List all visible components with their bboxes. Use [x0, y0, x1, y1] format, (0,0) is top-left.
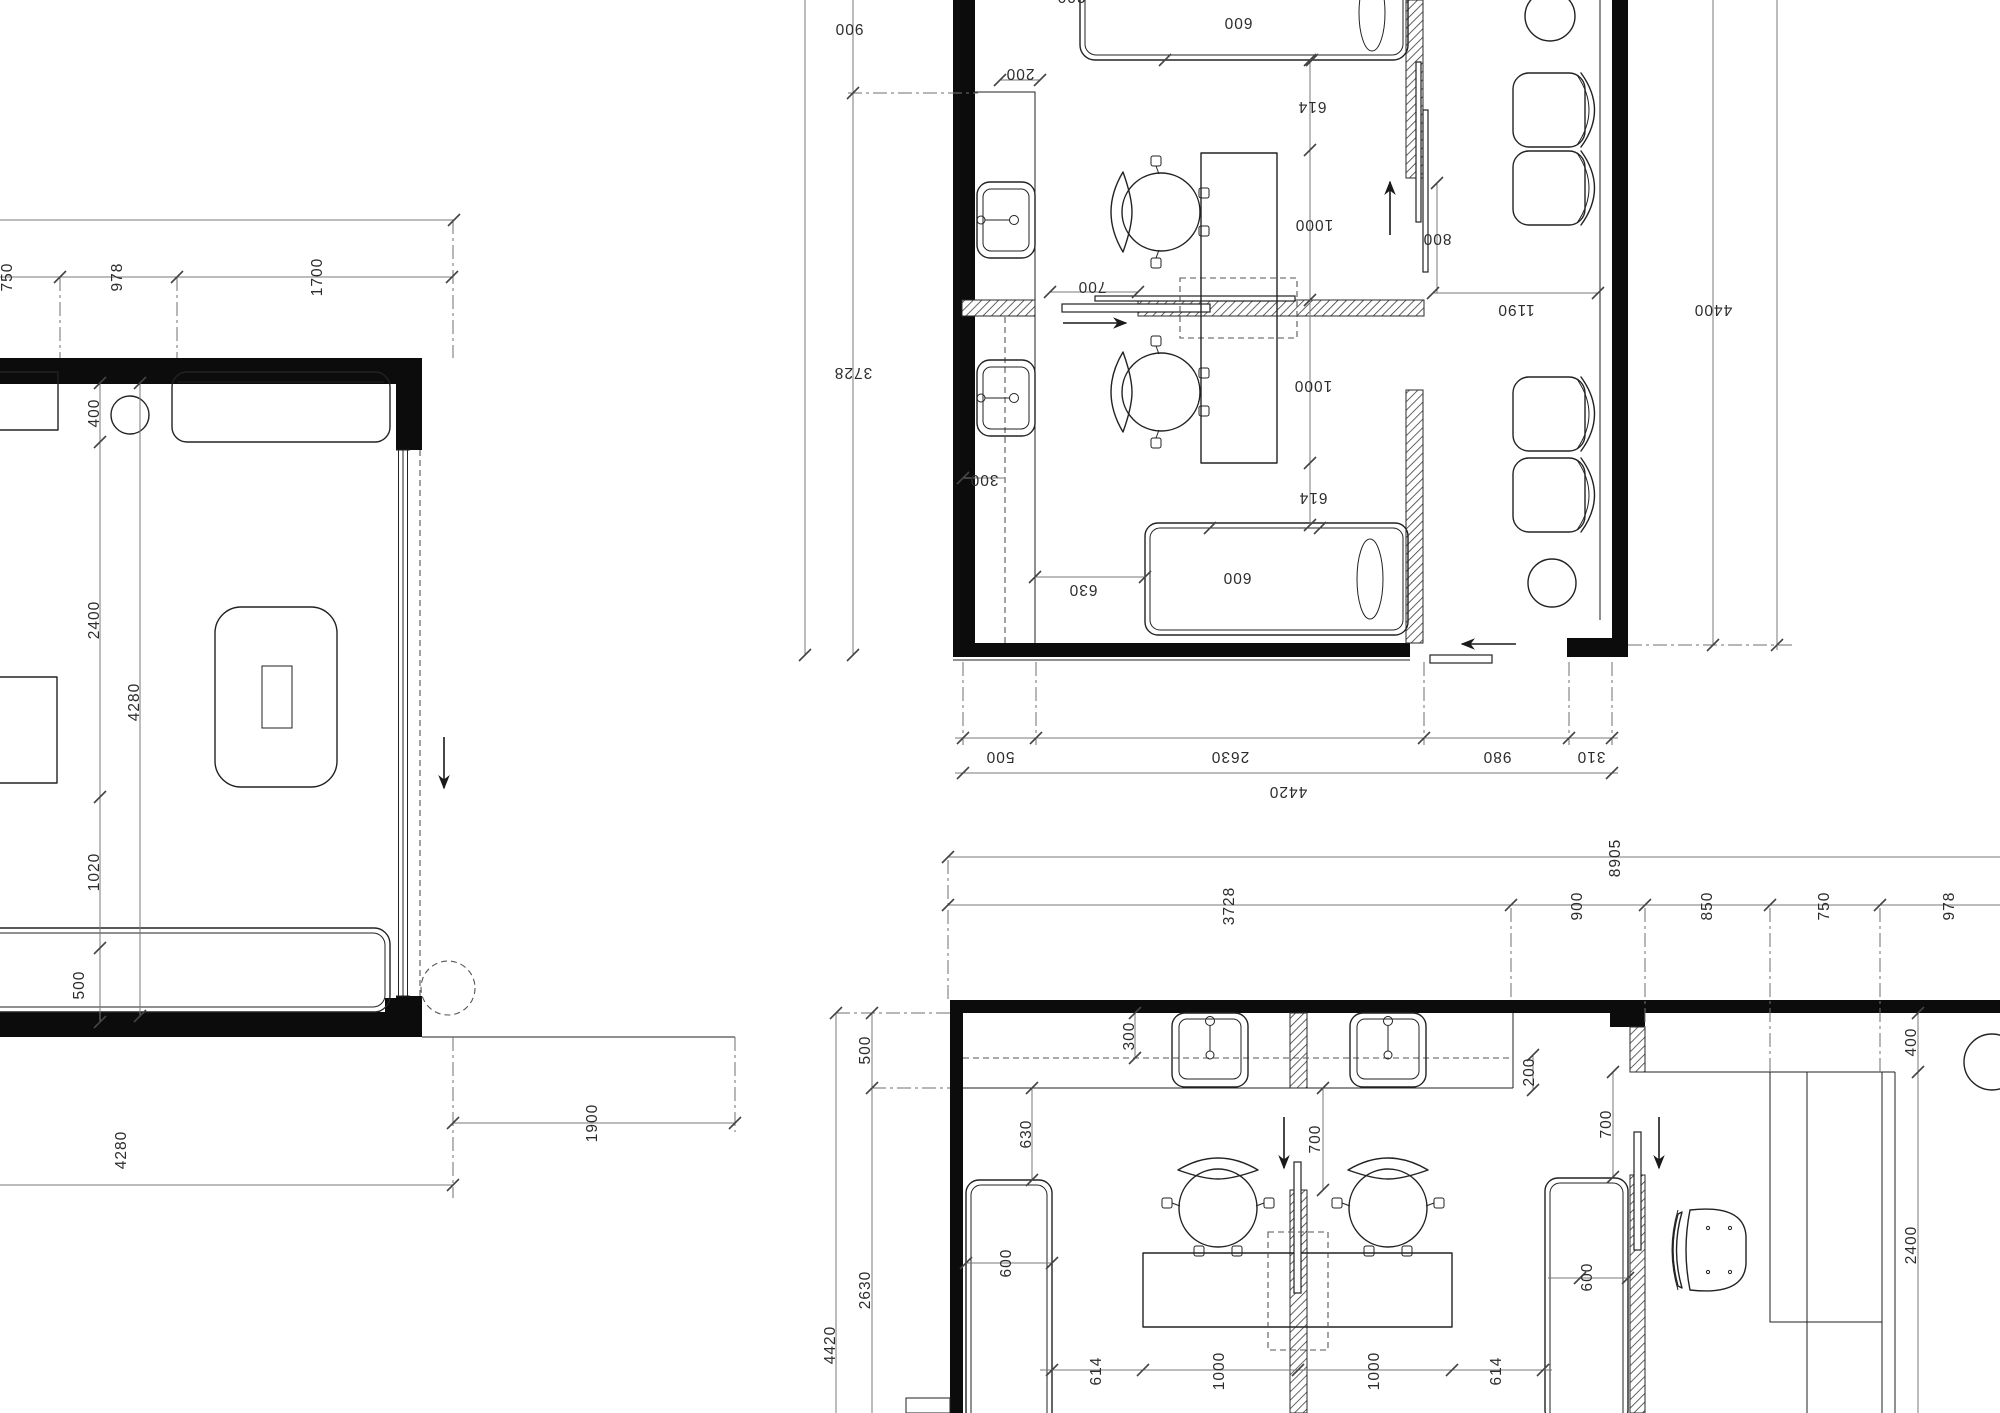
side-table	[1525, 0, 1575, 41]
extension-lines	[836, 860, 1880, 1088]
waiting-chair	[1513, 151, 1595, 225]
floor-plan-sheet: 750978170040024001020500428042801900	[0, 0, 2000, 1413]
waiting-chair	[1513, 73, 1595, 147]
dimension-label: 4280	[126, 683, 143, 721]
dimension-label: 614	[1488, 1357, 1505, 1386]
sink	[977, 360, 1035, 436]
planter-dashed	[421, 961, 475, 1015]
sink	[1350, 1013, 1426, 1087]
dimension-label: 1900	[584, 1104, 601, 1142]
dimension-label: 200	[1006, 65, 1035, 82]
dimension-label: 700	[1078, 278, 1107, 295]
furniture	[0, 372, 475, 1015]
dimensions: 2009006002006141000700800119044003728100…	[799, 0, 1795, 800]
dimension-label: 900	[1569, 892, 1586, 921]
partition-door-leaf	[1294, 1162, 1301, 1293]
bottom-bench	[0, 928, 390, 1012]
bench-bottom	[1145, 523, 1408, 635]
dimension-lines	[836, 857, 2000, 1413]
coffee-table	[215, 607, 337, 787]
sink	[1172, 1013, 1248, 1087]
dimension-label: 900	[835, 20, 864, 37]
dimension-label: 600	[1579, 1263, 1596, 1292]
floor-plan-drawing: 750978170040024001020500428042801900	[0, 0, 2000, 1413]
bench-right	[1545, 1178, 1628, 1413]
left-wall	[950, 1000, 963, 1413]
dimension-label: 1000	[1294, 377, 1332, 394]
dimension-label: 600	[1223, 569, 1252, 586]
sink	[977, 182, 1035, 258]
dimension-label: 614	[1298, 98, 1327, 115]
dimension-label: 4400	[1694, 301, 1732, 318]
left-sofa	[0, 372, 58, 783]
dimension-lines	[805, 0, 1777, 773]
entry-door-leaf	[1430, 655, 1492, 663]
wall-step	[385, 998, 422, 1014]
left-wall	[953, 0, 975, 657]
stool	[1964, 1034, 2000, 1090]
plan-top-right: 2009006002006141000700800119044003728100…	[799, 0, 1795, 800]
waiting-chair	[1513, 458, 1595, 532]
dimension-label: 2630	[857, 1271, 874, 1309]
plan-left: 750978170040024001020500428042801900	[0, 214, 741, 1198]
dimension-label: 750	[0, 263, 16, 292]
walls	[0, 358, 735, 1037]
dimension-label: 200	[1057, 0, 1086, 5]
dimension-ticks	[799, 54, 1783, 779]
furniture	[975, 0, 1595, 643]
dimension-label: 1000	[1366, 1352, 1383, 1390]
office-chair	[1672, 1209, 1746, 1291]
furniture	[906, 1013, 2000, 1413]
dimension-label: 400	[1903, 1028, 1920, 1057]
dimension-label: 630	[1069, 581, 1098, 598]
partition-hatched-upper	[1290, 1013, 1307, 1088]
dimension-label: 300	[970, 471, 999, 488]
bottom-wall	[0, 1012, 422, 1037]
dimension-label: 500	[71, 971, 88, 1000]
dimension-label: 200	[1521, 1058, 1538, 1087]
walls	[950, 1000, 2000, 1413]
dimension-label: 614	[1088, 1357, 1105, 1386]
dimension-label: 750	[1816, 892, 1833, 921]
dimension-label: 400	[86, 399, 103, 428]
right-wall	[1612, 0, 1628, 638]
corner-wall	[1567, 638, 1628, 657]
barber-chair	[1162, 1158, 1274, 1256]
dimension-label: 2630	[1211, 748, 1249, 765]
dimension-label: 310	[1577, 748, 1606, 765]
walls	[953, 0, 1628, 660]
stool	[111, 396, 149, 434]
dimension-label: 850	[1699, 892, 1716, 921]
sliding-doors	[1062, 62, 1516, 663]
waiting-chair	[1513, 377, 1595, 451]
dimension-label: 500	[986, 748, 1015, 765]
dimension-label: 1000	[1295, 216, 1333, 233]
dimension-label: 1190	[1497, 301, 1534, 318]
bench-left	[966, 1180, 1052, 1413]
partition-mirror-bar-2	[1095, 296, 1295, 301]
dimension-label: 1020	[86, 853, 103, 891]
dimension-label: 630	[1018, 1120, 1035, 1149]
dimension-label: 4280	[113, 1131, 130, 1169]
dimension-label: 978	[1941, 892, 1958, 921]
dimension-label: 700	[1307, 1125, 1324, 1154]
side-door-leaf-1	[1416, 62, 1421, 222]
reception-desk	[1770, 1072, 1882, 1322]
dimension-label: 600	[998, 1249, 1015, 1278]
room-door-leaf	[1634, 1132, 1641, 1250]
partition-mirror-bar	[1062, 304, 1210, 312]
bottom-wall	[953, 643, 1410, 657]
dimension-label: 800	[1423, 230, 1452, 247]
reception-area	[1645, 1072, 1895, 1413]
fixture-partial	[906, 1398, 950, 1413]
dimension-label: 1000	[1211, 1352, 1228, 1390]
dimension-ticks	[830, 851, 1924, 1376]
plan-bottom: 8905372890085075097850026304420300200630…	[822, 839, 2000, 1413]
dimension-label: 980	[1483, 748, 1512, 765]
dimension-label: 8905	[1607, 839, 1624, 877]
wall-step	[1610, 1013, 1645, 1027]
dimension-label: 3728	[834, 364, 872, 381]
dimension-label: 700	[1598, 1110, 1615, 1139]
dimension-label: 4420	[822, 1326, 839, 1364]
dimension-label: 600	[1224, 14, 1253, 31]
room-wall-hatched-upper	[1630, 1027, 1645, 1072]
dimension-label: 3728	[1221, 887, 1238, 925]
right-wall-upper	[396, 358, 422, 450]
barber-chair	[1111, 336, 1209, 448]
sliding-doors	[1268, 1117, 1659, 1350]
dimension-label: 4420	[1269, 783, 1307, 800]
dimension-labels: 8905372890085075097850026304420300200630…	[822, 839, 1958, 1390]
top-couch	[172, 372, 390, 442]
barber-chair	[1111, 156, 1209, 268]
top-wall	[0, 358, 422, 384]
dimension-label: 500	[857, 1036, 874, 1065]
top-wall	[950, 1000, 2000, 1013]
dimension-label: 978	[109, 263, 126, 292]
barber-chair	[1332, 1158, 1444, 1256]
dimension-label: 300	[1121, 1022, 1138, 1051]
dimension-label: 1700	[309, 258, 326, 296]
dimension-label: 2400	[86, 601, 103, 639]
side-table	[1528, 559, 1576, 607]
window-right-wall	[396, 450, 420, 996]
dimension-label: 614	[1299, 489, 1328, 506]
partition-hatched-left	[962, 300, 1035, 316]
dimension-label: 2400	[1903, 1226, 1920, 1264]
